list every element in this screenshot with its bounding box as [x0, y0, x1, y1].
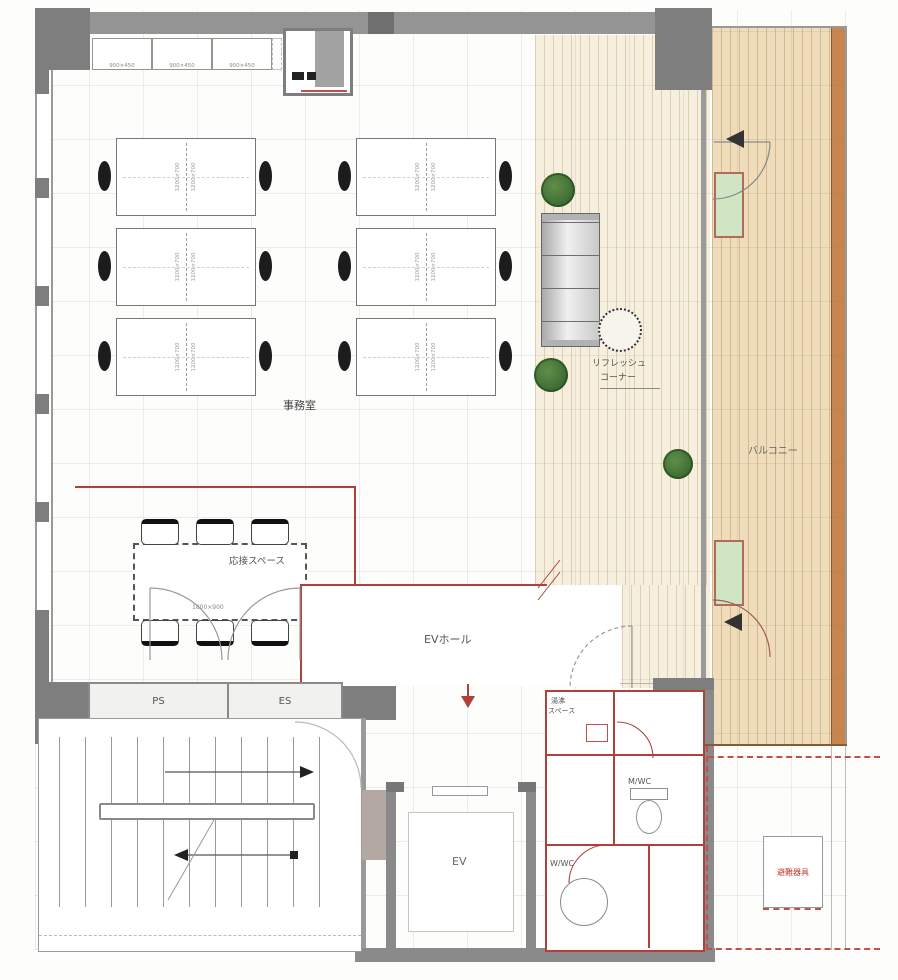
chair — [499, 251, 512, 281]
toilet-tank — [630, 788, 668, 800]
wall-segment — [362, 790, 388, 860]
wall-pier — [35, 70, 49, 94]
route-arrow — [461, 696, 475, 708]
fire-partition-line — [75, 486, 356, 488]
ev-shaft-post — [518, 782, 536, 792]
desk-pair: 1200×700 1200×700 — [116, 318, 256, 396]
chair — [259, 251, 272, 281]
chair — [259, 341, 272, 371]
refresh-label-leader — [600, 388, 660, 389]
desk-dim-label: 1200×700 — [431, 252, 437, 281]
kitchenette-label-line1: 湯沸 — [551, 698, 565, 706]
desk-pair: 1200×700 1200×700 — [116, 138, 256, 216]
wc-partition — [545, 844, 703, 846]
ev-shaft-post — [386, 782, 404, 792]
chair — [499, 341, 512, 371]
fire-partition-line — [354, 486, 356, 586]
reception-table-dim-label: 1800×900 — [192, 604, 224, 611]
desk-dim-label: 1200×700 — [191, 252, 197, 281]
ev-door — [432, 786, 488, 796]
window-panel — [714, 540, 744, 606]
chair — [338, 251, 351, 281]
cabinet-dim-label: 900×450 — [229, 63, 255, 69]
ev-label: EV — [452, 856, 466, 868]
chair — [338, 161, 351, 191]
utility-closet-fill — [315, 31, 344, 87]
wall-pier — [35, 610, 49, 682]
desk-dim-label: 1200×700 — [415, 342, 421, 371]
ev-shaft-wall — [526, 790, 536, 958]
desk-pair-row: 1200×700 1200×700 — [98, 138, 272, 214]
refresh-corner-label-line1: リフレッシュ — [592, 360, 646, 370]
chair — [338, 341, 351, 371]
plant — [663, 449, 693, 479]
desk-pair-row: 1200×700 1200×700 — [338, 138, 512, 214]
window-wall — [35, 70, 53, 682]
ev-hall-label: EVホール — [424, 634, 471, 646]
desk-pair-row: 1200×700 1200×700 — [338, 228, 512, 304]
staircase — [38, 718, 362, 952]
stair-dashed-line — [39, 935, 361, 936]
reception-chair — [141, 620, 179, 646]
exterior-line — [831, 746, 832, 950]
womens-wc-label: W/WC — [550, 860, 574, 869]
desk-pair: 1200×700 1200×700 — [356, 318, 496, 396]
evacuation-equipment-box: 避難器具 — [763, 836, 823, 908]
ev-car — [408, 812, 514, 932]
chair — [98, 251, 111, 281]
room-es: ES — [227, 682, 343, 720]
desk-pair: 1200×700 1200×700 — [356, 138, 496, 216]
window-panel — [714, 172, 744, 238]
desk-dim-label: 1200×700 — [431, 342, 437, 371]
route-arrow-stem — [467, 684, 469, 696]
cabinet-dim-label: 900×450 — [109, 63, 135, 69]
desk-dim-label: 1200×700 — [175, 342, 181, 371]
red-dashed-boundary — [708, 756, 880, 758]
red-dashed-boundary — [706, 746, 708, 950]
sofa — [541, 213, 600, 347]
reception-chair — [141, 519, 179, 545]
chair — [98, 161, 111, 191]
wc-partition — [613, 754, 615, 846]
desk-pair-row: 1200×700 1200×700 — [338, 318, 512, 394]
cabinet-dashed — [272, 38, 282, 70]
wc-partition — [613, 690, 615, 756]
red-accent — [301, 90, 347, 92]
desk-pair-row: 1200×700 1200×700 — [98, 318, 272, 394]
desk-dim-label: 1200×700 — [175, 162, 181, 191]
ev-shaft-wall — [386, 790, 396, 958]
plant — [534, 358, 568, 392]
cabinet: 900×450 — [92, 38, 152, 70]
cabinet: 900×450 — [152, 38, 212, 70]
refresh-corner-label-line2: コーナー — [600, 374, 636, 384]
ps-label: PS — [152, 696, 164, 707]
cabinet-dim-label: 900×450 — [169, 63, 195, 69]
reception-chair — [251, 519, 289, 545]
exterior-line — [845, 746, 846, 950]
desk-pair-row: 1200×700 1200×700 — [98, 228, 272, 304]
desk-dim-label: 1200×700 — [415, 252, 421, 281]
toilet-bowl — [636, 800, 662, 834]
wc-partition — [648, 844, 650, 948]
desk-pair: 1200×700 1200×700 — [116, 228, 256, 306]
balcony-floor — [712, 28, 831, 744]
balcony-right-line — [845, 26, 847, 746]
es-label: ES — [279, 696, 292, 707]
balcony-top-line — [712, 26, 847, 28]
room-ps: PS — [88, 682, 229, 720]
chair — [259, 161, 272, 191]
balcony-label: バルコニー — [748, 446, 798, 457]
desk-dim-label: 1200×700 — [175, 252, 181, 281]
stair-treads — [59, 737, 341, 907]
red-dashed-mark — [763, 908, 821, 910]
wall-pier — [35, 286, 49, 306]
utility-fixture — [307, 72, 316, 80]
reception-chair — [196, 519, 234, 545]
balcony-bottom-line — [705, 744, 847, 746]
desk-dim-label: 1200×700 — [191, 342, 197, 371]
reception-chair — [251, 620, 289, 646]
wall-segment — [368, 12, 394, 34]
plant — [541, 173, 575, 207]
round-table — [598, 308, 642, 352]
kitchenette-sink — [586, 724, 608, 742]
chair — [499, 161, 512, 191]
wall-pier — [35, 502, 49, 522]
desk-dim-label: 1200×700 — [191, 162, 197, 191]
wall-segment — [655, 8, 712, 90]
wc-partition — [545, 754, 703, 756]
utility-fixture — [292, 72, 304, 80]
desk-pair: 1200×700 1200×700 — [356, 228, 496, 306]
evacuation-label: 避難器具 — [777, 867, 809, 878]
office-label: 事務室 — [283, 400, 316, 412]
chair — [98, 341, 111, 371]
wall-pier — [35, 178, 49, 198]
reception-label: 応接スペース — [229, 557, 285, 567]
mens-wc-label: M/WC — [628, 778, 651, 787]
wall-segment — [701, 90, 706, 682]
cabinet: 900×450 — [212, 38, 272, 70]
red-dashed-boundary — [706, 948, 880, 950]
wall-segment — [35, 8, 90, 70]
reception-chair — [196, 620, 234, 646]
wc-basin — [560, 878, 608, 926]
desk-dim-label: 1200×700 — [415, 162, 421, 191]
stair-handrail — [99, 803, 315, 820]
kitchenette-label-line2: スペース — [548, 708, 575, 716]
desk-dim-label: 1200×700 — [431, 162, 437, 191]
floor-plan-canvas: 900×450 900×450 900×450 1200×700 1200×70… — [0, 0, 898, 980]
wall-pier — [35, 394, 49, 414]
